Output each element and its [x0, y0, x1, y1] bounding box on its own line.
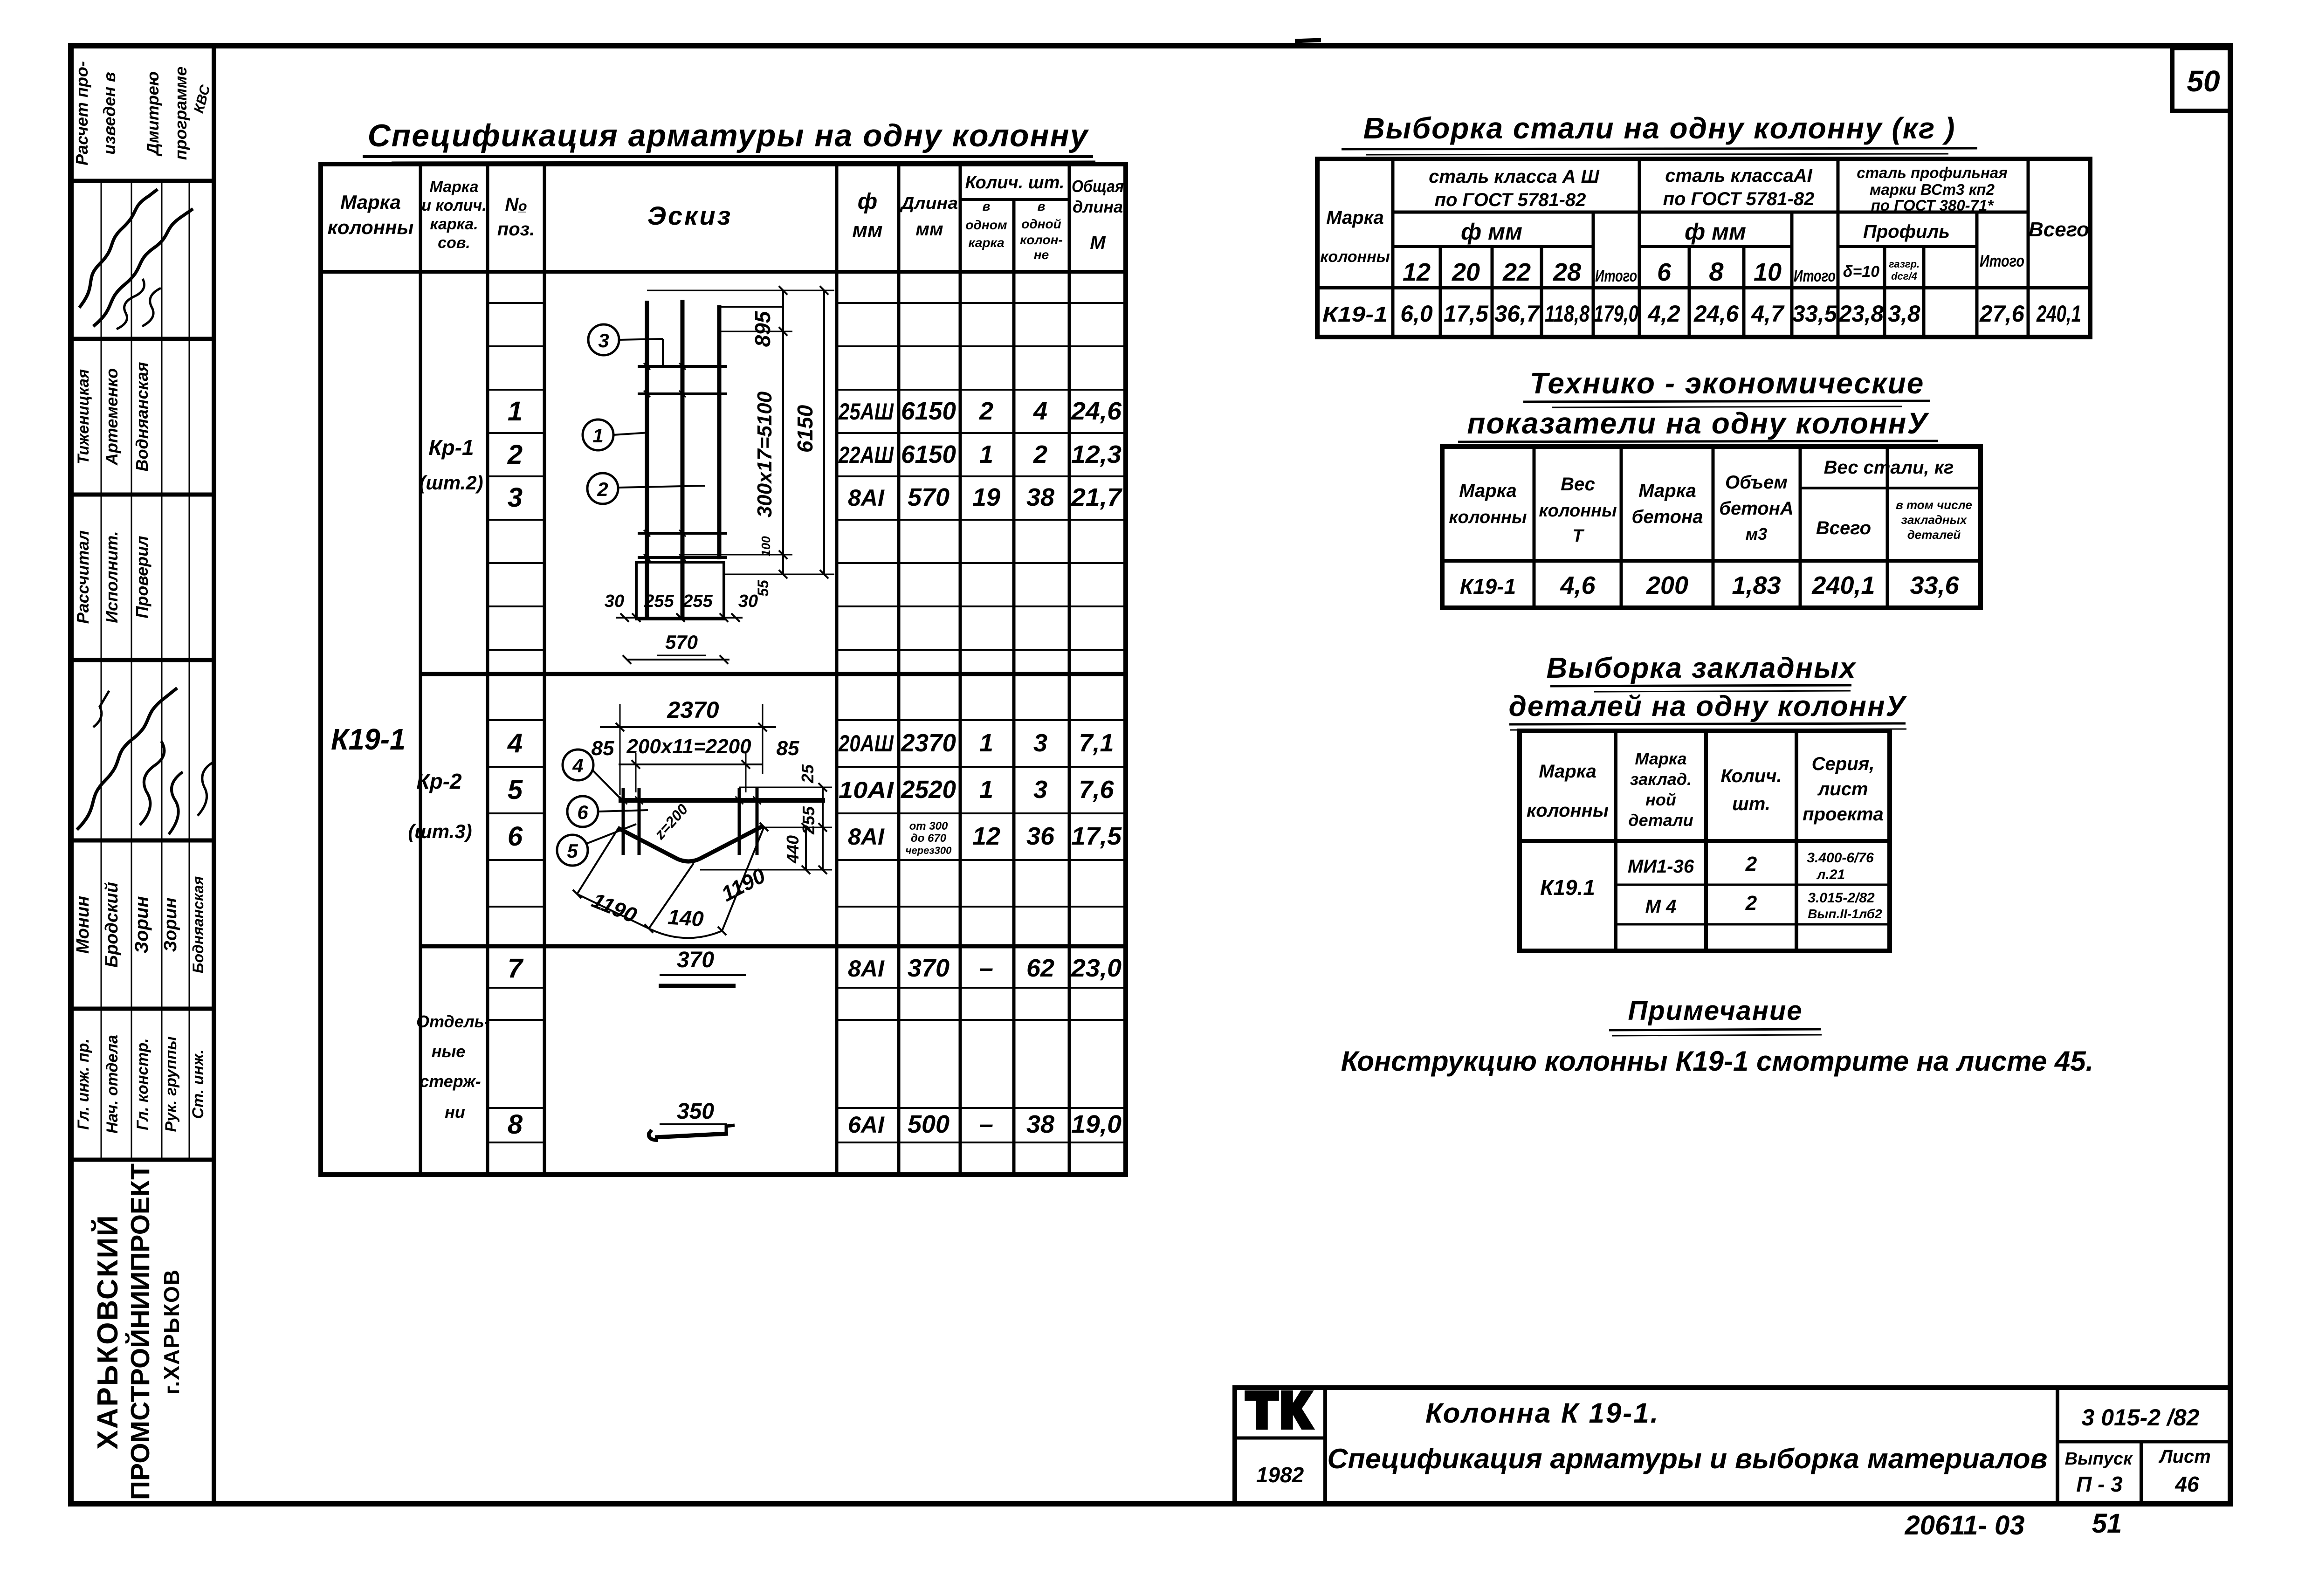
svg-text:Выпуск: Выпуск: [2065, 1449, 2133, 1469]
svg-text:Артеменко: Артеменко: [102, 368, 121, 466]
svg-text:в том числе: в том числе: [1896, 498, 1972, 512]
svg-text:20: 20: [1452, 258, 1480, 286]
svg-text:8АІ: 8АІ: [848, 956, 885, 982]
svg-text:20611- 03: 20611- 03: [1905, 1510, 2025, 1541]
svg-text:27,6: 27,6: [1979, 301, 2025, 327]
svg-text:Вес стали, кг: Вес стали, кг: [1824, 457, 1954, 478]
svg-text:62: 62: [1026, 954, 1054, 982]
svg-text:ХАРЬКОВСКИЙ: ХАРЬКОВСКИЙ: [91, 1214, 124, 1449]
svg-text:23,0: 23,0: [1071, 954, 1122, 982]
svg-text:Марка: Марка: [1638, 481, 1696, 501]
svg-text:4: 4: [1033, 397, 1047, 425]
svg-text:2: 2: [1745, 853, 1757, 875]
svg-text:36: 36: [1026, 822, 1055, 850]
svg-text:100: 100: [759, 536, 773, 557]
svg-text:6150: 6150: [901, 440, 956, 468]
svg-text:Марка: Марка: [1459, 481, 1517, 501]
svg-text:(шт.2): (шт.2): [419, 472, 483, 494]
svg-text:П - 3: П - 3: [2076, 1472, 2123, 1496]
svg-text:в: в: [983, 199, 991, 213]
svg-text:от 300: от 300: [909, 820, 948, 832]
svg-text:–: –: [979, 954, 993, 982]
svg-text:6150: 6150: [901, 397, 956, 425]
svg-text:бетонА: бетонА: [1719, 498, 1794, 519]
svg-text:255: 255: [799, 806, 818, 835]
svg-text:4,7: 4,7: [1751, 301, 1785, 327]
svg-text:по ГОСТ 380-71*: по ГОСТ 380-71*: [1871, 197, 1995, 214]
svg-text:33,6: 33,6: [1910, 571, 1959, 599]
svg-text:6: 6: [1657, 258, 1672, 286]
svg-text:Итого: Итого: [1794, 266, 1836, 285]
svg-text:Выборка стали на одну колонну: Выборка стали на одну колонну (кг ): [1363, 111, 1956, 145]
svg-text:Профиль: Профиль: [1863, 221, 1950, 242]
svg-text:Гл. инж. пр.: Гл. инж. пр.: [75, 1039, 92, 1130]
svg-text:К19.1: К19.1: [1540, 875, 1595, 900]
svg-text:карка: карка: [968, 235, 1004, 250]
svg-text:4,2: 4,2: [1647, 301, 1680, 327]
svg-text:240,1: 240,1: [2036, 301, 2081, 327]
svg-text:Выборка закладных: Выборка закладных: [1546, 652, 1857, 684]
svg-text:24,6: 24,6: [1693, 301, 1739, 327]
svg-text:Спецификация арматуры и выбор: Спецификация арматуры и выборка материал…: [1328, 1443, 2048, 1474]
svg-text:Эскиз: Эскиз: [647, 201, 733, 230]
svg-text:570: 570: [665, 631, 698, 653]
svg-text:25АШ: 25АШ: [838, 399, 894, 425]
svg-text:3: 3: [598, 330, 609, 351]
svg-text:20АШ: 20АШ: [838, 730, 894, 757]
svg-text:Вес: Вес: [1561, 474, 1595, 495]
svg-text:350: 350: [677, 1099, 714, 1124]
svg-text:Кр-2: Кр-2: [416, 769, 462, 793]
svg-text:М 4: М 4: [1645, 896, 1677, 917]
svg-text:и колич.: и колич.: [421, 197, 486, 214]
svg-text:19,0: 19,0: [1071, 1110, 1122, 1138]
svg-text:закладных: закладных: [1901, 513, 1968, 527]
svg-text:Марка: Марка: [340, 191, 401, 213]
svg-text:1: 1: [979, 729, 993, 757]
svg-text:12,3: 12,3: [1071, 440, 1122, 468]
svg-text:Дмитрею: Дмитрею: [143, 71, 162, 157]
svg-text:Вып.II-1лб2: Вып.II-1лб2: [1808, 907, 1882, 921]
svg-text:ТК: ТК: [1246, 1382, 1314, 1438]
svg-text:2: 2: [597, 478, 608, 500]
svg-text:6150: 6150: [793, 405, 817, 453]
svg-text:поз.: поз.: [497, 219, 535, 240]
svg-text:деталей: деталей: [1907, 528, 1961, 542]
svg-text:шт.: шт.: [1732, 794, 1770, 814]
svg-text:ПРОМСТРОЙНИИПРОЕКТ: ПРОМСТРОЙНИИПРОЕКТ: [125, 1163, 155, 1500]
svg-text:колонны: колонны: [1320, 248, 1390, 266]
svg-text:10: 10: [1754, 258, 1782, 286]
svg-text:мм: мм: [852, 219, 882, 241]
svg-text:4: 4: [572, 755, 583, 777]
svg-text:Зорин: Зорин: [131, 896, 152, 953]
svg-text:одном: одном: [965, 218, 1007, 232]
svg-text:карка.: карка.: [430, 215, 478, 233]
svg-text:8АІ: 8АІ: [848, 485, 885, 511]
svg-text:46: 46: [2174, 1472, 2199, 1496]
svg-text:3 015-2 /82: 3 015-2 /82: [2082, 1404, 2200, 1431]
svg-text:колонны: колонны: [1527, 800, 1609, 821]
svg-text:Нач. отдела: Нач. отдела: [103, 1035, 121, 1134]
svg-text:Марка: Марка: [1326, 207, 1384, 228]
svg-text:Марка: Марка: [1635, 749, 1686, 768]
svg-text:Общая: Общая: [1072, 177, 1124, 196]
svg-text:δ=10: δ=10: [1843, 263, 1880, 281]
svg-text:газгр.: газгр.: [1889, 258, 1920, 270]
svg-text:51: 51: [2092, 1508, 2122, 1539]
svg-text:К19-1: К19-1: [331, 722, 406, 756]
svg-text:–: –: [979, 1110, 993, 1138]
svg-text:через300: через300: [906, 845, 952, 856]
svg-text:22АШ: 22АШ: [838, 442, 894, 468]
svg-text:3: 3: [1033, 729, 1047, 757]
svg-text:5: 5: [508, 775, 523, 805]
svg-text:85: 85: [777, 737, 799, 760]
svg-text:50: 50: [2187, 64, 2220, 98]
svg-text:Итого: Итого: [1595, 266, 1637, 285]
svg-text:Колонна К 19-1.: Колонна К 19-1.: [1425, 1397, 1659, 1429]
svg-text:10АІ: 10АІ: [839, 777, 894, 803]
svg-text:3: 3: [508, 482, 523, 513]
svg-text:2370: 2370: [667, 697, 719, 723]
svg-text:240,1: 240,1: [1811, 571, 1875, 599]
svg-text:dсг/4: dсг/4: [1891, 270, 1917, 282]
svg-text:22: 22: [1502, 258, 1531, 286]
svg-text:3,8: 3,8: [1888, 301, 1920, 327]
svg-text:МИ1-36: МИ1-36: [1628, 856, 1694, 877]
svg-text:проекта: проекта: [1803, 804, 1884, 825]
svg-text:8: 8: [508, 1109, 523, 1140]
svg-text:деталей на одну колоннУ: деталей на одну колоннУ: [1509, 690, 1907, 722]
svg-text:2: 2: [979, 397, 993, 425]
svg-text:лист: лист: [1817, 779, 1868, 799]
svg-text:17,5: 17,5: [1444, 301, 1489, 327]
svg-text:5: 5: [567, 840, 578, 862]
svg-text:6АІ: 6АІ: [848, 1112, 885, 1138]
svg-text:1: 1: [979, 776, 993, 804]
svg-text:до 670: до 670: [911, 832, 947, 845]
svg-text:440: 440: [783, 835, 802, 864]
svg-text:заклад.: заклад.: [1630, 770, 1692, 789]
svg-text:2: 2: [1033, 440, 1047, 468]
svg-text:500: 500: [908, 1110, 950, 1138]
svg-text:4: 4: [507, 728, 523, 758]
svg-text:30: 30: [605, 592, 624, 611]
svg-text:7,1: 7,1: [1079, 729, 1114, 757]
svg-text:Ст. инж.: Ст. инж.: [189, 1049, 207, 1119]
svg-text:2370: 2370: [901, 729, 956, 757]
svg-text:изведен в: изведен в: [100, 72, 119, 154]
svg-text:255: 255: [644, 592, 674, 611]
svg-text:1,83: 1,83: [1732, 571, 1781, 599]
svg-text:8АІ: 8АІ: [848, 824, 885, 850]
svg-text:Примечание: Примечание: [1628, 996, 1803, 1026]
svg-text:детали: детали: [1628, 811, 1693, 830]
svg-text:6: 6: [577, 801, 588, 823]
svg-text:Бодняанская: Бодняанская: [190, 876, 206, 973]
svg-text:сталь классаАІ: сталь классаАІ: [1665, 165, 1812, 186]
svg-text:300х17=5100: 300х17=5100: [753, 391, 776, 517]
svg-text:179,0: 179,0: [1594, 301, 1638, 327]
svg-text:М: М: [1090, 233, 1106, 253]
svg-text:одной: одной: [1021, 217, 1061, 231]
svg-text:Колич. шт.: Колич. шт.: [965, 173, 1065, 193]
svg-text:Исполнит.: Исполнит.: [102, 531, 121, 623]
svg-text:г.ХАРЬКОВ: г.ХАРЬКОВ: [159, 1269, 184, 1395]
svg-text:сов.: сов.: [438, 234, 470, 252]
svg-text:12: 12: [972, 822, 1000, 850]
svg-text:бетона: бетона: [1632, 507, 1703, 527]
svg-text:ные: ные: [432, 1042, 466, 1061]
svg-text:Отдель-: Отдель-: [416, 1012, 490, 1031]
svg-text:25: 25: [798, 764, 817, 784]
svg-text:ной: ной: [1645, 790, 1676, 809]
svg-text:7: 7: [508, 953, 524, 984]
svg-text:сталь класса А Ш: сталь класса А Ш: [1429, 166, 1600, 187]
svg-text:Технико - экономические: Технико - экономические: [1530, 366, 1925, 400]
svg-text:не: не: [1034, 248, 1049, 262]
svg-text:колонны: колонны: [1449, 508, 1527, 527]
svg-text:Рассчитал: Рассчитал: [73, 530, 92, 624]
svg-text:мм: мм: [915, 219, 943, 240]
svg-text:сталь профильная: сталь профильная: [1857, 164, 2007, 181]
svg-text:1: 1: [592, 425, 603, 447]
svg-text:Зорин: Зорин: [161, 897, 180, 952]
svg-text:1: 1: [508, 396, 523, 427]
svg-text:м3: м3: [1746, 524, 1768, 543]
svg-text:Монин: Монин: [73, 896, 93, 954]
svg-text:Гл. констр.: Гл. констр.: [134, 1038, 151, 1130]
svg-text:23,8: 23,8: [1838, 301, 1884, 327]
svg-text:Лист: Лист: [2158, 1446, 2211, 1467]
svg-text:ни: ни: [445, 1102, 465, 1121]
svg-text:36,7: 36,7: [1494, 301, 1540, 327]
svg-text:Бродский: Бродский: [102, 882, 122, 968]
svg-text:Всего: Всего: [2029, 218, 2089, 241]
svg-text:Водняанская: Водняанская: [132, 362, 151, 472]
svg-text:колонны: колонны: [1539, 501, 1617, 521]
svg-text:по ГОСТ 5781-82: по ГОСТ 5781-82: [1435, 190, 1586, 210]
svg-text:7,6: 7,6: [1079, 776, 1114, 804]
svg-text:Тиженицкая: Тиженицкая: [75, 369, 92, 464]
svg-text:6: 6: [508, 821, 523, 852]
svg-text:длина: длина: [1073, 197, 1123, 216]
svg-text:38: 38: [1026, 1110, 1054, 1138]
svg-text:370: 370: [908, 954, 950, 982]
svg-text:Марка: Марка: [430, 178, 479, 196]
svg-text:3.015-2/82: 3.015-2/82: [1808, 890, 1875, 906]
svg-text:Конструкцию колонны К19-1 с: Конструкцию колонны К19-1 смотрите на ли…: [1341, 1046, 2094, 1077]
svg-text:3.400-6/76: 3.400-6/76: [1807, 850, 1874, 866]
svg-text:ф мм: ф мм: [1685, 219, 1746, 245]
svg-text:200х11=2200: 200х11=2200: [626, 735, 751, 758]
svg-text:118,8: 118,8: [1545, 301, 1589, 327]
svg-text:Спецификация арматуры на од: Спецификация арматуры на одну колонну: [368, 118, 1089, 153]
svg-text:140: 140: [667, 904, 705, 931]
svg-text:Всего: Всего: [1816, 518, 1871, 538]
svg-text:895: 895: [750, 310, 775, 347]
svg-text:Т: Т: [1572, 526, 1584, 546]
svg-text:2: 2: [507, 440, 523, 470]
svg-text:Проверил: Проверил: [132, 536, 151, 618]
svg-text:марки ВСт3 кп2: марки ВСт3 кп2: [1870, 181, 1995, 198]
svg-text:28: 28: [1553, 258, 1581, 286]
svg-text:255: 255: [682, 592, 713, 611]
svg-text:стерж-: стерж-: [420, 1072, 481, 1091]
svg-text:1: 1: [979, 440, 993, 468]
svg-text:12: 12: [1403, 258, 1431, 286]
svg-text:в: в: [1038, 199, 1046, 213]
svg-text:21,7: 21,7: [1071, 483, 1123, 511]
svg-text:Рук. группы: Рук. группы: [162, 1036, 180, 1132]
svg-text:24,6: 24,6: [1071, 397, 1122, 425]
svg-text:К19-1: К19-1: [1322, 302, 1388, 326]
svg-text:2520: 2520: [901, 776, 956, 804]
svg-text:л.21: л.21: [1816, 867, 1845, 882]
svg-text:по ГОСТ 5781-82: по ГОСТ 5781-82: [1663, 189, 1815, 209]
svg-text:2: 2: [1745, 892, 1757, 915]
svg-text:ф: ф: [858, 189, 877, 214]
svg-text:колон-: колон-: [1020, 233, 1063, 247]
svg-text:Объем: Объем: [1725, 472, 1788, 493]
svg-text:Кр-1: Кр-1: [428, 435, 474, 460]
svg-text:колонны: колонны: [328, 216, 414, 238]
svg-text:программе: программе: [171, 67, 190, 160]
svg-text:показатели на одну колоннУ: показатели на одну колоннУ: [1467, 406, 1929, 440]
svg-text:6,0: 6,0: [1400, 301, 1433, 327]
svg-text:17,5: 17,5: [1071, 822, 1122, 850]
svg-text:85: 85: [592, 737, 614, 760]
svg-text:Серия,: Серия,: [1812, 754, 1875, 774]
svg-text:33,5: 33,5: [1792, 301, 1837, 327]
svg-text:Длина: Длина: [900, 193, 958, 213]
svg-text:(шт.3): (шт.3): [408, 820, 472, 842]
svg-text:30: 30: [738, 592, 758, 611]
svg-text:Колич.: Колич.: [1720, 766, 1782, 786]
svg-text:8: 8: [1709, 257, 1724, 286]
svg-text:Итого: Итого: [1980, 251, 2024, 270]
svg-text:Марка: Марка: [1539, 761, 1596, 782]
svg-text:570: 570: [908, 483, 950, 511]
svg-text:3: 3: [1033, 776, 1047, 804]
svg-text:Расчет про-: Расчет про-: [72, 61, 91, 165]
svg-text:К19-1: К19-1: [1460, 574, 1516, 598]
svg-text:200: 200: [1646, 571, 1688, 599]
svg-text:38: 38: [1026, 483, 1054, 511]
svg-text:ф мм: ф мм: [1461, 219, 1522, 245]
svg-text:370: 370: [677, 948, 714, 972]
svg-text:1982: 1982: [1256, 1463, 1304, 1487]
svg-text:4,6: 4,6: [1560, 571, 1596, 599]
svg-text:19: 19: [972, 483, 1000, 511]
